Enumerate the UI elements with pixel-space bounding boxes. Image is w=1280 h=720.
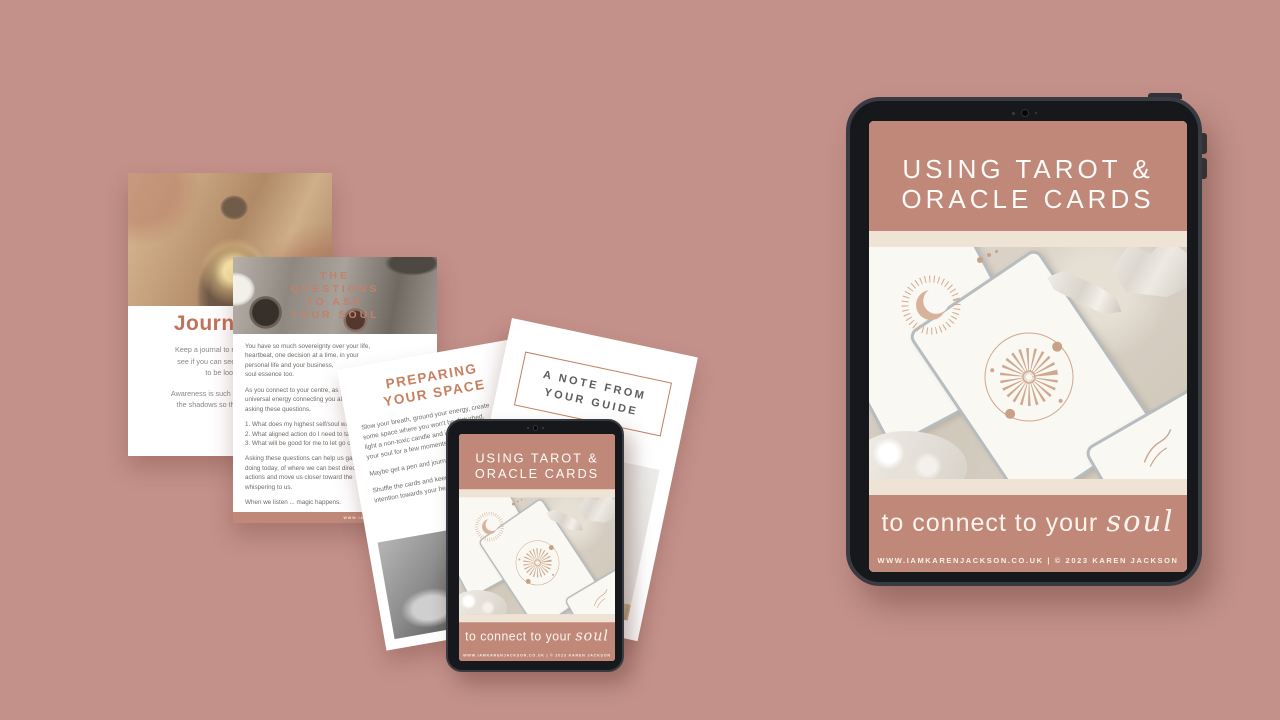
- camera-row: [850, 109, 1198, 117]
- title-line: QUESTIONS: [291, 283, 380, 295]
- tagline-script: soul: [1106, 504, 1174, 538]
- cover-title-line2: ORACLE CARDS: [475, 466, 599, 481]
- cover-title-line2: ORACLE CARDS: [901, 184, 1154, 215]
- cream-band: [869, 479, 1187, 495]
- cover-tagline: to connect to yoursoul: [869, 495, 1187, 538]
- cover-footer: WWW.IAMKARENJACKSON.CO.UK | © 2023 KAREN…: [869, 556, 1187, 565]
- dot-accent: [977, 257, 983, 263]
- dot-accent: [995, 250, 998, 253]
- text-line: You have so much sovereignty over your l…: [245, 342, 437, 351]
- cover-bottom-band: to connect to yoursoul WWW.IAMKARENJACKS…: [869, 495, 1187, 572]
- tablet-small: USING TAROT & ORACLE CARDS: [446, 419, 624, 672]
- camera-lens-icon: [533, 425, 539, 431]
- dot-accent: [512, 502, 515, 505]
- crescent-moon-icon: [893, 267, 969, 343]
- crystal-cluster: [575, 497, 615, 522]
- cream-band: [869, 231, 1187, 247]
- cover-header: USING TAROT & ORACLE CARDS: [459, 434, 615, 489]
- crystal-cluster: [869, 431, 967, 479]
- camera-lens-icon: [1021, 109, 1029, 117]
- title-line: THE: [320, 270, 350, 282]
- camera-dot-icon: [1035, 112, 1037, 114]
- cover-bottom-band: to connect to yoursoul WWW.IAMKARENJACKS…: [459, 622, 615, 661]
- cover-header: USING TAROT & ORACLE CARDS: [869, 121, 1187, 231]
- cream-band: [459, 614, 615, 622]
- tarot-cards-photo: [459, 497, 615, 614]
- cream-band: [459, 489, 615, 497]
- tablet-large: USING TAROT & ORACLE CARDS: [846, 97, 1202, 586]
- tablet-small-bezel: USING TAROT & ORACLE CARDS: [446, 419, 624, 672]
- cover-title: USING TAROT & ORACLE CARDS: [475, 450, 599, 489]
- tablet-large-bezel: USING TAROT & ORACLE CARDS: [846, 97, 1202, 586]
- questions-header-photo: THE QUESTIONS TO ASK YOUR SOUL: [233, 257, 437, 334]
- title-line: TO ASK: [306, 296, 363, 308]
- cover-title: USING TAROT & ORACLE CARDS: [901, 154, 1154, 231]
- crystal-cluster: [459, 590, 507, 614]
- crystal-cluster: [1105, 247, 1187, 297]
- tablet-large-screen: USING TAROT & ORACLE CARDS: [869, 121, 1187, 572]
- cover-tagline: to connect to yoursoul: [459, 622, 615, 644]
- tagline-script: soul: [575, 627, 609, 644]
- sun-mandala-icon: [965, 313, 1092, 440]
- sun-mandala-icon: [506, 531, 569, 595]
- mockup-stage: Journaling Keep a journal to reflect upo…: [0, 0, 1280, 720]
- cover-title-line1: USING TAROT &: [901, 154, 1154, 185]
- tarot-cards-photo: [869, 247, 1187, 479]
- cover-title-line1: USING TAROT &: [475, 450, 599, 465]
- questions-title: THE QUESTIONS TO ASK YOUR SOUL: [233, 257, 437, 334]
- dot-accent: [987, 253, 991, 257]
- tablet-small-screen: USING TAROT & ORACLE CARDS: [459, 434, 615, 661]
- dot-accent: [521, 499, 522, 501]
- tagline-plain: to connect to your: [465, 629, 571, 643]
- title-line: YOUR SOUL: [290, 309, 379, 321]
- cover-footer: WWW.IAMKARENJACKSON.CO.UK | © 2023 KAREN…: [459, 653, 615, 658]
- ebook-cover-small: USING TAROT & ORACLE CARDS: [459, 434, 615, 661]
- dot-accent: [517, 500, 519, 502]
- camera-row: [448, 425, 622, 431]
- tagline-plain: to connect to your: [881, 509, 1098, 537]
- crescent-moon-icon: [471, 508, 508, 546]
- camera-dot-icon: [542, 427, 544, 429]
- camera-dot-icon: [527, 427, 529, 429]
- ebook-cover-large: USING TAROT & ORACLE CARDS: [869, 121, 1187, 572]
- camera-dot-icon: [1012, 112, 1015, 115]
